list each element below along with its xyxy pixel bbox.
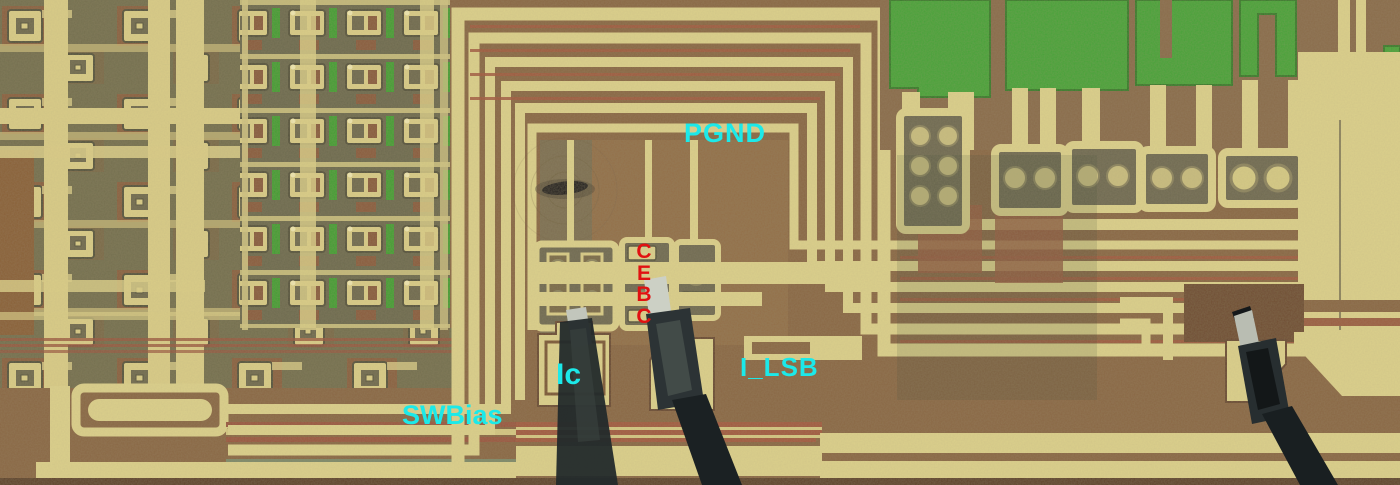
terminal-letter-b: B <box>636 284 651 306</box>
net-label-pgnd: PGND <box>684 118 766 149</box>
net-label-ilsb: I_LSB <box>740 352 819 383</box>
net-label-ic: Ic <box>556 358 581 392</box>
terminal-letter-c2: C <box>636 306 651 328</box>
terminal-letter-c1: C <box>636 241 651 263</box>
terminal-letter-column: C E B C <box>633 241 655 327</box>
terminal-letter-e: E <box>637 263 651 285</box>
die-artwork <box>0 0 1400 485</box>
net-label-swbias: SWBias <box>402 400 503 431</box>
die-photomicrograph: PGND C E B C Ic I_LSB SWBias <box>0 0 1400 485</box>
